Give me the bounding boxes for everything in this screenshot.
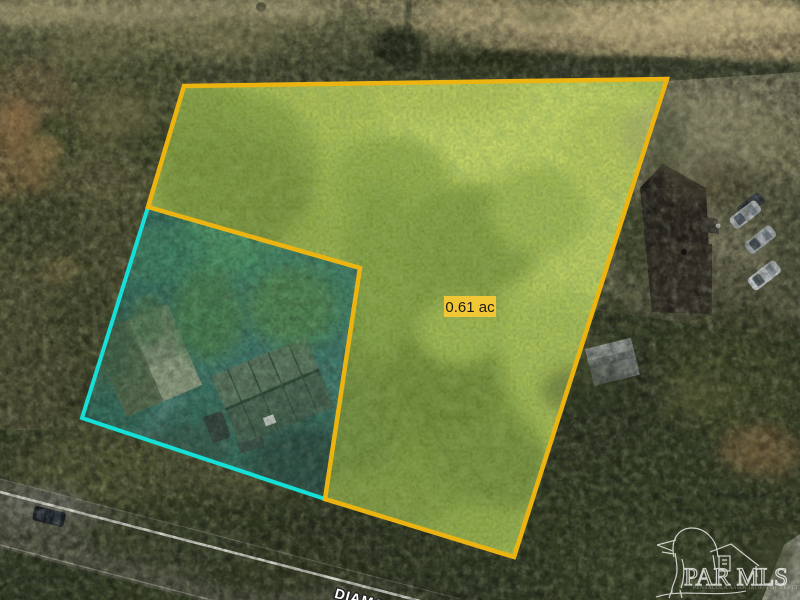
svg-text:0.61 ac: 0.61 ac xyxy=(445,299,495,316)
svg-text:PENSACOLA ASSOCIATION OF REALT: PENSACOLA ASSOCIATION OF REALTORS xyxy=(693,585,800,591)
